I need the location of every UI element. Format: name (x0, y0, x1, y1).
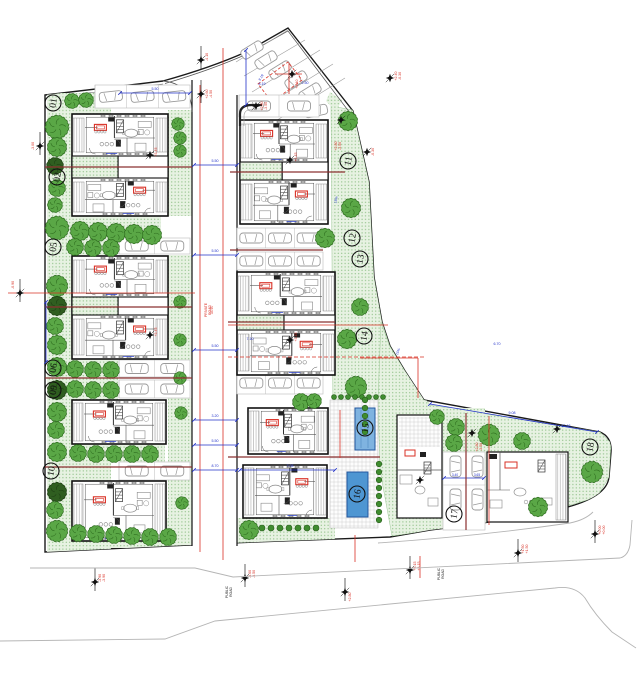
svg-text:5.50: 5.50 (212, 249, 219, 253)
svg-text:9.08: 9.08 (509, 411, 516, 415)
svg-text:7.05: 7.05 (287, 464, 294, 468)
svg-text:ROAD: ROAD (229, 587, 233, 597)
svg-text:10: 10 (46, 465, 58, 476)
svg-text:-3.50: -3.50 (264, 102, 268, 110)
svg-text:-0.30: -0.30 (371, 148, 375, 156)
svg-text:+2.40: +2.40 (295, 79, 299, 88)
svg-text:ROAD: ROAD (441, 569, 445, 579)
svg-text:-3.50: -3.50 (252, 570, 256, 578)
svg-text:17: 17 (449, 508, 461, 519)
svg-text:18: 18 (585, 441, 597, 452)
svg-text:+3.15: +3.15 (417, 561, 421, 570)
svg-text:5.50: 5.50 (212, 439, 219, 443)
svg-text:5.50: 5.50 (152, 87, 159, 91)
svg-text:09: 09 (48, 384, 60, 395)
svg-text:06: 06 (48, 362, 60, 373)
svg-text:+3.45: +3.45 (294, 332, 298, 341)
svg-text:+2.80: +2.80 (348, 592, 352, 601)
svg-text:5.50: 5.50 (212, 344, 219, 348)
svg-text:02: 02 (52, 171, 64, 182)
svg-text:-3.50: -3.50 (338, 142, 342, 150)
svg-text:16: 16 (352, 488, 364, 499)
svg-text:-4.10: -4.10 (205, 53, 209, 61)
svg-text:+3.45: +3.45 (154, 147, 158, 156)
svg-text:+1.50: +1.50 (525, 544, 529, 553)
svg-text:-0.90: -0.90 (11, 281, 15, 289)
svg-text:7.10: 7.10 (247, 337, 254, 341)
svg-text:3.65: 3.65 (474, 473, 480, 477)
svg-text:01: 01 (48, 97, 60, 108)
svg-text:5.50: 5.50 (212, 159, 219, 163)
svg-text:+0.00: +0.00 (602, 525, 606, 534)
svg-text:-3.90: -3.90 (102, 574, 106, 582)
svg-text:8.70: 8.70 (212, 464, 219, 468)
svg-text:13: 13 (355, 253, 367, 264)
svg-text:8.19: 8.19 (259, 82, 266, 86)
svg-text:-3.00: -3.00 (31, 142, 35, 150)
svg-text:-4.50: -4.50 (209, 90, 213, 98)
svg-text:3.40: 3.40 (452, 473, 458, 477)
svg-text:2.50: 2.50 (302, 81, 309, 85)
svg-text:3.20: 3.20 (212, 414, 219, 418)
svg-text:15: 15 (360, 422, 372, 433)
svg-text:6.70: 6.70 (494, 342, 501, 346)
svg-text:13.48: 13.48 (562, 424, 571, 428)
svg-text:35.90: 35.90 (210, 306, 214, 315)
svg-text:12: 12 (347, 232, 359, 243)
svg-text:-3.50: -3.50 (479, 443, 483, 451)
svg-text:05: 05 (48, 241, 60, 252)
svg-text:-0.30: -0.30 (398, 72, 402, 80)
svg-text:+3.45: +3.45 (294, 152, 298, 161)
svg-text:+3.45: +3.45 (154, 327, 158, 336)
svg-text:14: 14 (359, 330, 371, 341)
